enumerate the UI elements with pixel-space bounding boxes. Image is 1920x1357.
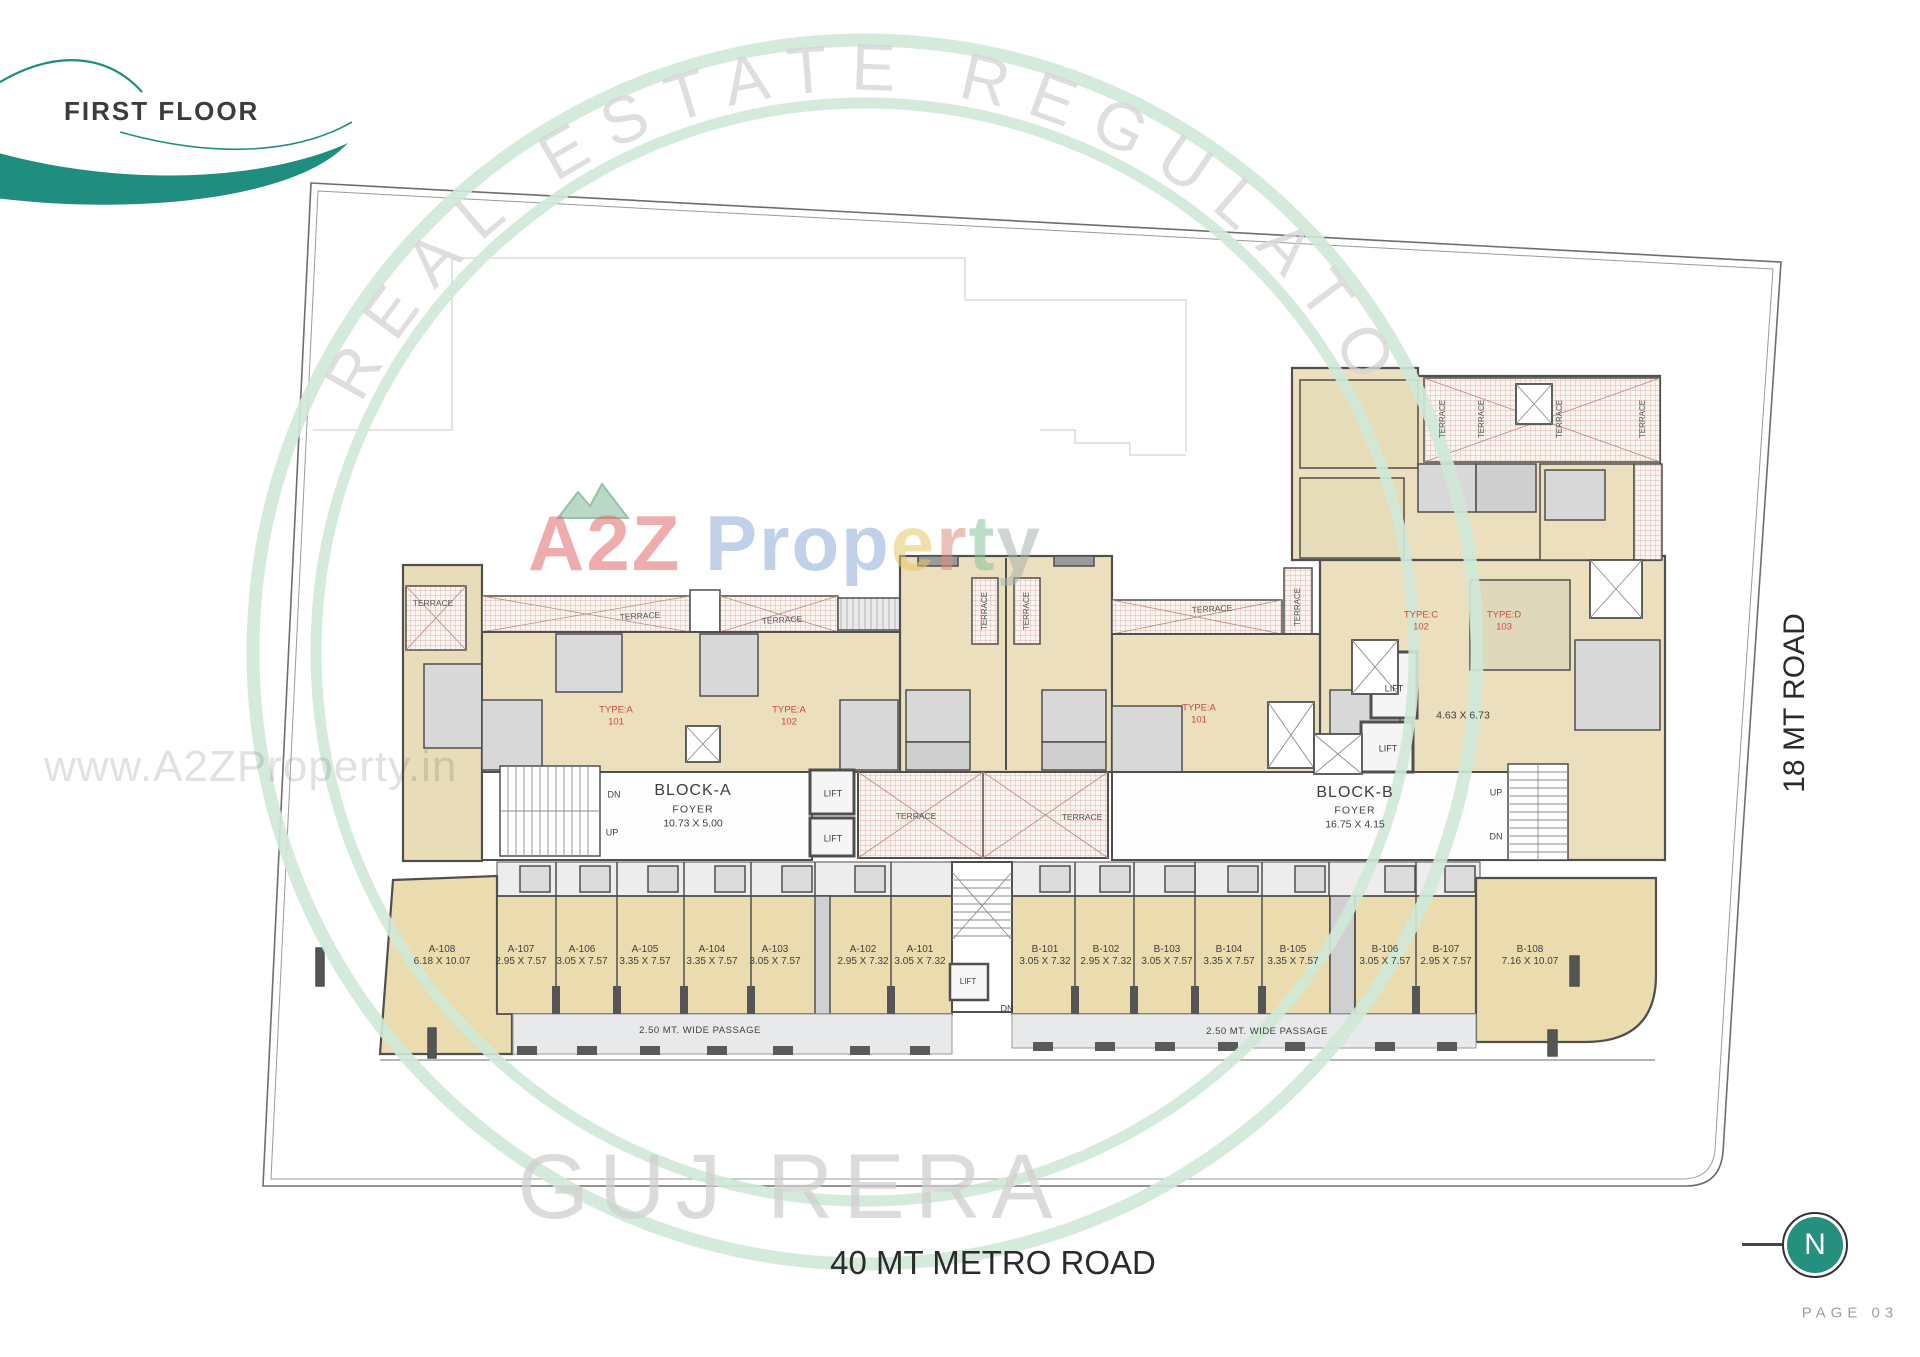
terrace-a-1: TERRACE	[619, 610, 660, 622]
unit-label-a-102: A-102 2.95 X 7.32	[837, 944, 888, 968]
brand-letter-7: p	[841, 499, 891, 587]
brand-letter-4: P	[705, 499, 759, 587]
unit-label-a-101: A-101 3.05 X 7.32	[894, 944, 945, 968]
stair-b-dn: DN	[1490, 832, 1503, 843]
watermark-brand: A2Z Property	[528, 498, 1042, 589]
block-b-name: BLOCK-B	[1316, 783, 1393, 803]
stair-shops-dn: DN	[1001, 1004, 1014, 1015]
terrace-strip-a	[482, 590, 900, 634]
unit-label-b-107: B-107 2.95 X 7.57	[1420, 944, 1471, 968]
type-a-101-first: TYPE:A 101	[599, 704, 633, 727]
floor-plan-page: REAL ESTATE REGULATO GUJ RERA FIRST FLOO…	[0, 0, 1920, 1357]
stair-a-up: UP	[606, 828, 619, 839]
lift-shops: LIFT	[960, 977, 976, 987]
brand-letter-2: Z	[632, 499, 682, 587]
terrace-left-cap: TERRACE	[413, 598, 454, 608]
terrace-a-2: TERRACE	[761, 614, 802, 626]
lift-a-1: LIFT	[824, 789, 843, 800]
lift-a-2: LIFT	[824, 834, 843, 845]
north-letter: N	[1804, 1228, 1826, 1262]
brand-letter-11: y	[997, 499, 1042, 587]
floor-plan-drawing: REAL ESTATE REGULATO GUJ RERA	[0, 0, 1920, 1357]
title-swoosh	[0, 60, 352, 205]
passage-b: 2.50 MT. WIDE PASSAGE	[1206, 1026, 1328, 1038]
brand-letter-6: o	[791, 499, 841, 587]
terrace-tower-right: TERRACE	[1022, 592, 1032, 630]
unit-label-a-104: A-104 3.35 X 7.57	[686, 944, 737, 968]
brand-letter-0: A	[528, 499, 586, 587]
type-a-101-second: TYPE:A 101	[1182, 702, 1216, 725]
stair-b-up: UP	[1490, 788, 1503, 799]
block-a-foyer	[482, 766, 854, 860]
unit-label-b-103: B-103 3.05 X 7.57	[1141, 944, 1192, 968]
unit-label-b-106: B-106 3.05 X 7.57	[1359, 944, 1410, 968]
unit-label-b-105: B-105 3.35 X 7.57	[1267, 944, 1318, 968]
terrace-mid-right: TERRACE	[1062, 812, 1103, 822]
unit-label-a-105: A-105 3.35 X 7.57	[619, 944, 670, 968]
terrace-tower-left: TERRACE	[980, 592, 990, 630]
block-a-foyer: FOYER	[672, 804, 713, 817]
unit-label-a-106: A-106 3.05 X 7.57	[556, 944, 607, 968]
brand-letter-9: r	[936, 499, 968, 587]
brand-letter-1: 2	[586, 499, 631, 587]
north-icon: N	[1787, 1217, 1843, 1273]
terrace-wing-2: TERRACE	[1477, 400, 1487, 438]
block-a-size: 10.73 X 5.00	[663, 818, 723, 831]
terrace-wing-4: TERRACE	[1638, 400, 1648, 438]
type-a-102: TYPE:A 102	[772, 704, 806, 727]
watermark-url: www.A2ZProperty.in	[44, 742, 457, 792]
block-a-name: BLOCK-A	[654, 781, 731, 801]
shops-stair	[950, 862, 1012, 1012]
terrace-b: TERRACE	[1191, 603, 1232, 615]
block-b-size: 16.75 X 4.15	[1325, 819, 1385, 832]
unit-label-b-101: B-101 3.05 X 7.32	[1019, 944, 1070, 968]
type-d-103: TYPE:D 103	[1487, 609, 1521, 632]
brand-letter-8: e	[891, 499, 936, 587]
unit-label-a-107: A-107 2.95 X 7.57	[495, 944, 546, 968]
terrace-vert-blockb: TERRACE	[1293, 588, 1303, 626]
terrace-wing-1: TERRACE	[1438, 400, 1448, 438]
passage-a: 2.50 MT. WIDE PASSAGE	[639, 1025, 761, 1037]
north-indicator-line	[1742, 1243, 1784, 1246]
wing-left-cap	[403, 565, 482, 861]
lift-b-1: LIFT	[1385, 684, 1404, 695]
unit-label-b-108: B-108 7.16 X 10.07	[1502, 944, 1559, 968]
unit-label-a-103: A-103 3.05 X 7.57	[749, 944, 800, 968]
dim-463x673: 4.63 X 6.73	[1436, 710, 1490, 723]
terrace-mid-left: TERRACE	[896, 811, 937, 821]
unit-label-b-102: B-102 2.95 X 7.32	[1080, 944, 1131, 968]
brand-letter-10: t	[969, 499, 997, 587]
unit-label-b-104: B-104 3.35 X 7.57	[1203, 944, 1254, 968]
page-number: PAGE 03	[1802, 1305, 1898, 1322]
unit-label-a-108: A-108 6.18 X 10.07	[414, 944, 471, 968]
brand-letter-5: r	[759, 499, 791, 587]
stair-a-dn: DN	[608, 790, 621, 801]
road-label-bottom: 40 MT METRO ROAD	[830, 1244, 1156, 1282]
type-c-102: TYPE:C 102	[1404, 609, 1438, 632]
lift-b-2: LIFT	[1379, 744, 1398, 755]
brand-letter-3	[681, 499, 705, 587]
north-indicator: N	[1782, 1212, 1848, 1278]
terrace-wing-3: TERRACE	[1555, 400, 1565, 438]
road-label-right: 18 MT ROAD	[1778, 613, 1812, 793]
block-b-foyer: FOYER	[1334, 805, 1375, 818]
page-title: FIRST FLOOR	[64, 96, 259, 127]
watermark-guj-rera: GUJ RERA	[517, 1136, 1062, 1238]
